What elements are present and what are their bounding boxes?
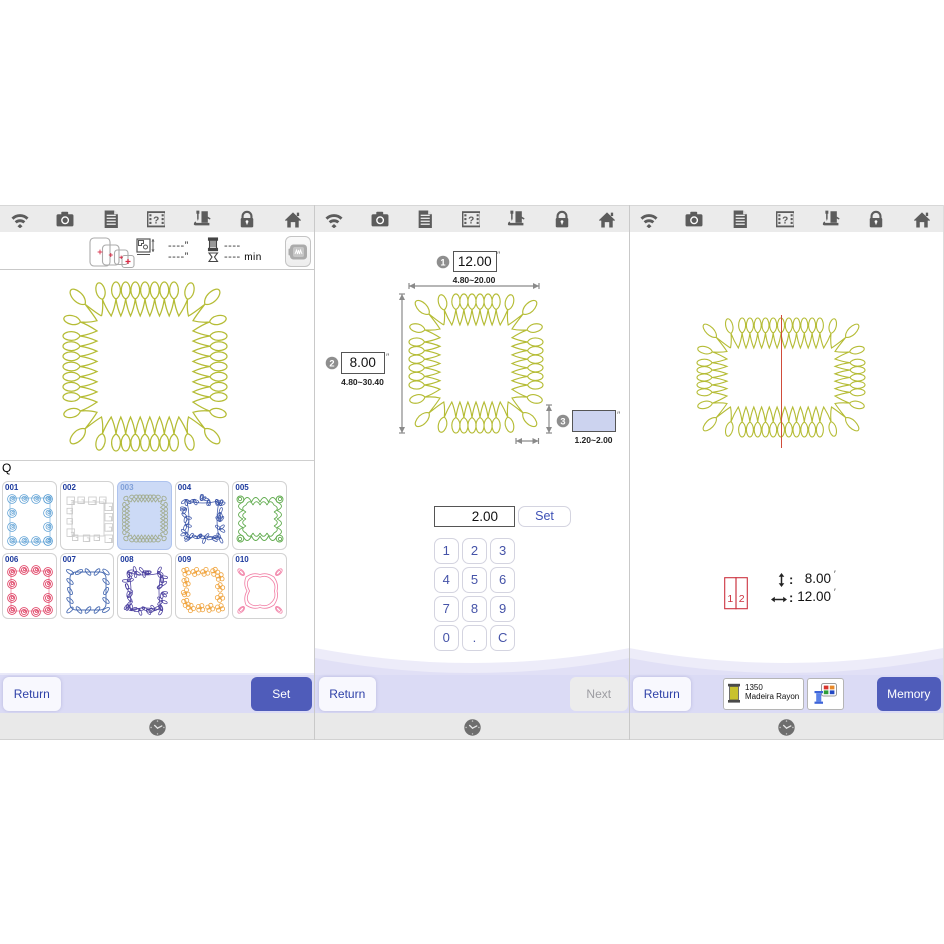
svg-text:?: ? (468, 215, 474, 226)
svg-text:2: 2 (739, 593, 745, 605)
svg-text:1: 1 (440, 257, 445, 267)
svg-text:?: ? (783, 215, 789, 226)
svg-text:1: 1 (727, 593, 733, 605)
svg-text:2: 2 (329, 358, 334, 368)
svg-text:3: 3 (560, 416, 565, 426)
svg-text:?: ? (153, 215, 159, 226)
